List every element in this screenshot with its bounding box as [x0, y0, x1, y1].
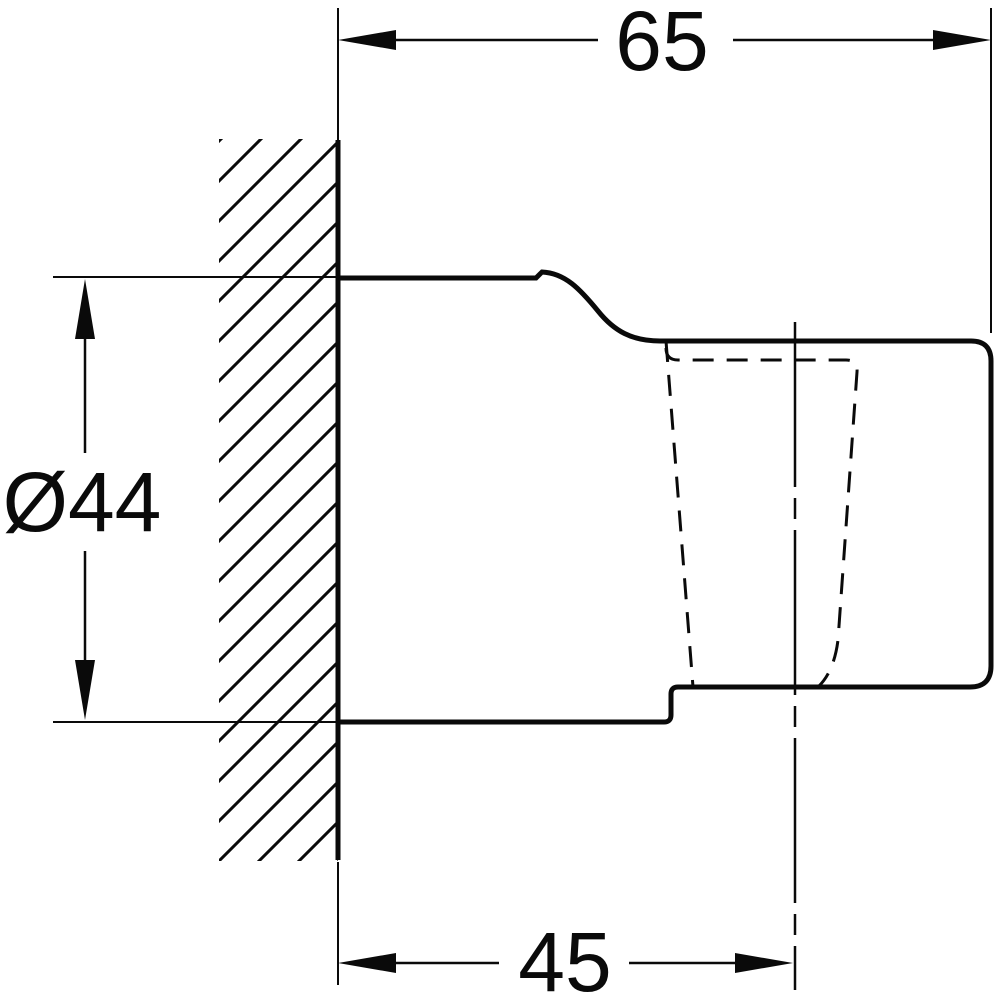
arrowhead-left	[338, 953, 396, 973]
hidden-cone-top-right-edge	[666, 348, 857, 687]
dimension-label-bottom-depth: 45	[518, 915, 611, 1000]
arrowhead-down	[75, 660, 95, 720]
arrowhead-up	[75, 279, 95, 339]
arrowhead-right	[735, 953, 793, 973]
drawing-svg: 65 Ø44 45	[0, 0, 1000, 1000]
dimension-label-diameter: Ø44	[3, 455, 162, 549]
dimension-bottom-depth: 45	[338, 862, 793, 1000]
hidden-socket-cone	[666, 341, 857, 687]
dimension-top-width: 65	[338, 0, 991, 333]
hidden-cone-left-edge	[666, 341, 693, 687]
dimension-label-top-width: 65	[615, 0, 708, 88]
arrowhead-right	[933, 30, 991, 50]
holder-body-outline	[338, 272, 991, 722]
wall-section	[219, 139, 338, 861]
wall-hatching	[219, 139, 338, 861]
technical-drawing: 65 Ø44 45	[0, 0, 1000, 1000]
arrowhead-left	[338, 30, 396, 50]
